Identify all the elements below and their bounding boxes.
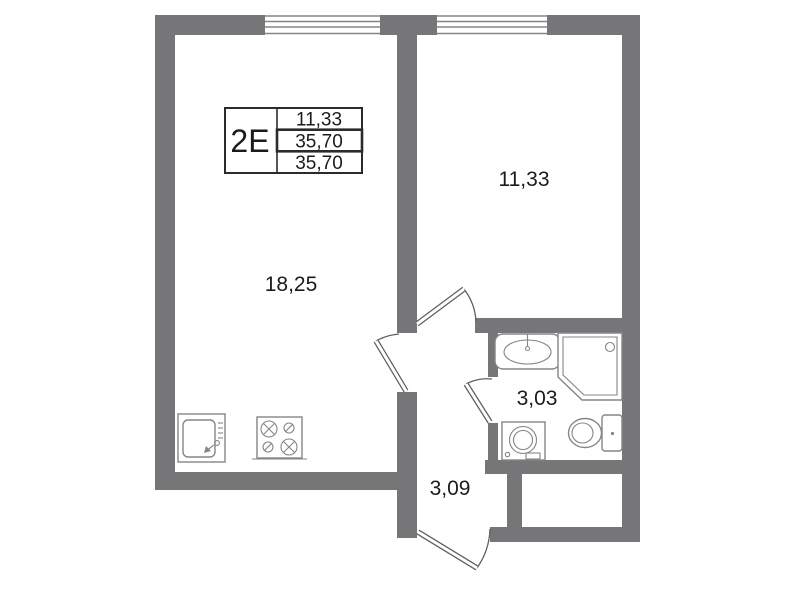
wall-bottom-right: [490, 527, 640, 542]
wall-bath-bottom: [485, 460, 640, 474]
wall-bath-left-lower: [488, 423, 498, 460]
legend-type-label: 2E: [230, 123, 269, 159]
living-room-door: [376, 334, 406, 391]
window-bedroom: [437, 16, 547, 34]
legend-value-overall: 35,70: [295, 153, 343, 174]
wall-top-middle: [380, 15, 437, 35]
legend-value-living: 11,33: [296, 110, 342, 131]
wall-living-bottom: [155, 472, 417, 490]
wall-left: [155, 15, 175, 490]
floor-plan-canvas: 18,25 11,33 3,03 3,09 2E 11,33 35,70 35,…: [0, 0, 799, 600]
legend-value-total: 35,70: [295, 131, 343, 152]
bathroom-door: [466, 379, 492, 422]
toilet-icon: [569, 415, 623, 451]
walls: [155, 15, 640, 542]
stove-icon: [252, 417, 307, 459]
wall-middle-lower: [397, 392, 417, 538]
bathroom-sink-icon: [495, 334, 560, 369]
window-living: [265, 16, 380, 34]
wall-closet-left: [507, 474, 522, 527]
bathroom-door-arc: [466, 379, 492, 384]
hallway-area-label: 3,09: [430, 477, 471, 500]
wall-bedroom-bottom: [475, 318, 622, 333]
bedroom-area-label: 11,33: [499, 168, 550, 191]
floor-plan-svg: 18,25 11,33 3,03 3,09 2E 11,33 35,70 35,…: [0, 0, 799, 600]
living-room-door-arc: [376, 334, 399, 341]
wall-middle-upper: [397, 35, 417, 333]
bedroom-door-arc: [464, 289, 476, 321]
entrance-door: [418, 529, 490, 568]
bathroom-area-label: 3,03: [517, 387, 558, 410]
legend-table: 2E 11,33 35,70 35,70: [225, 108, 362, 174]
bedroom-door: [417, 289, 476, 324]
living-kitchen-area-label: 18,25: [265, 273, 318, 296]
kitchen-sink-icon: [178, 414, 225, 462]
shower-icon: [558, 333, 622, 400]
entrance-door-arc: [477, 529, 490, 568]
washing-machine-icon: [502, 422, 545, 460]
